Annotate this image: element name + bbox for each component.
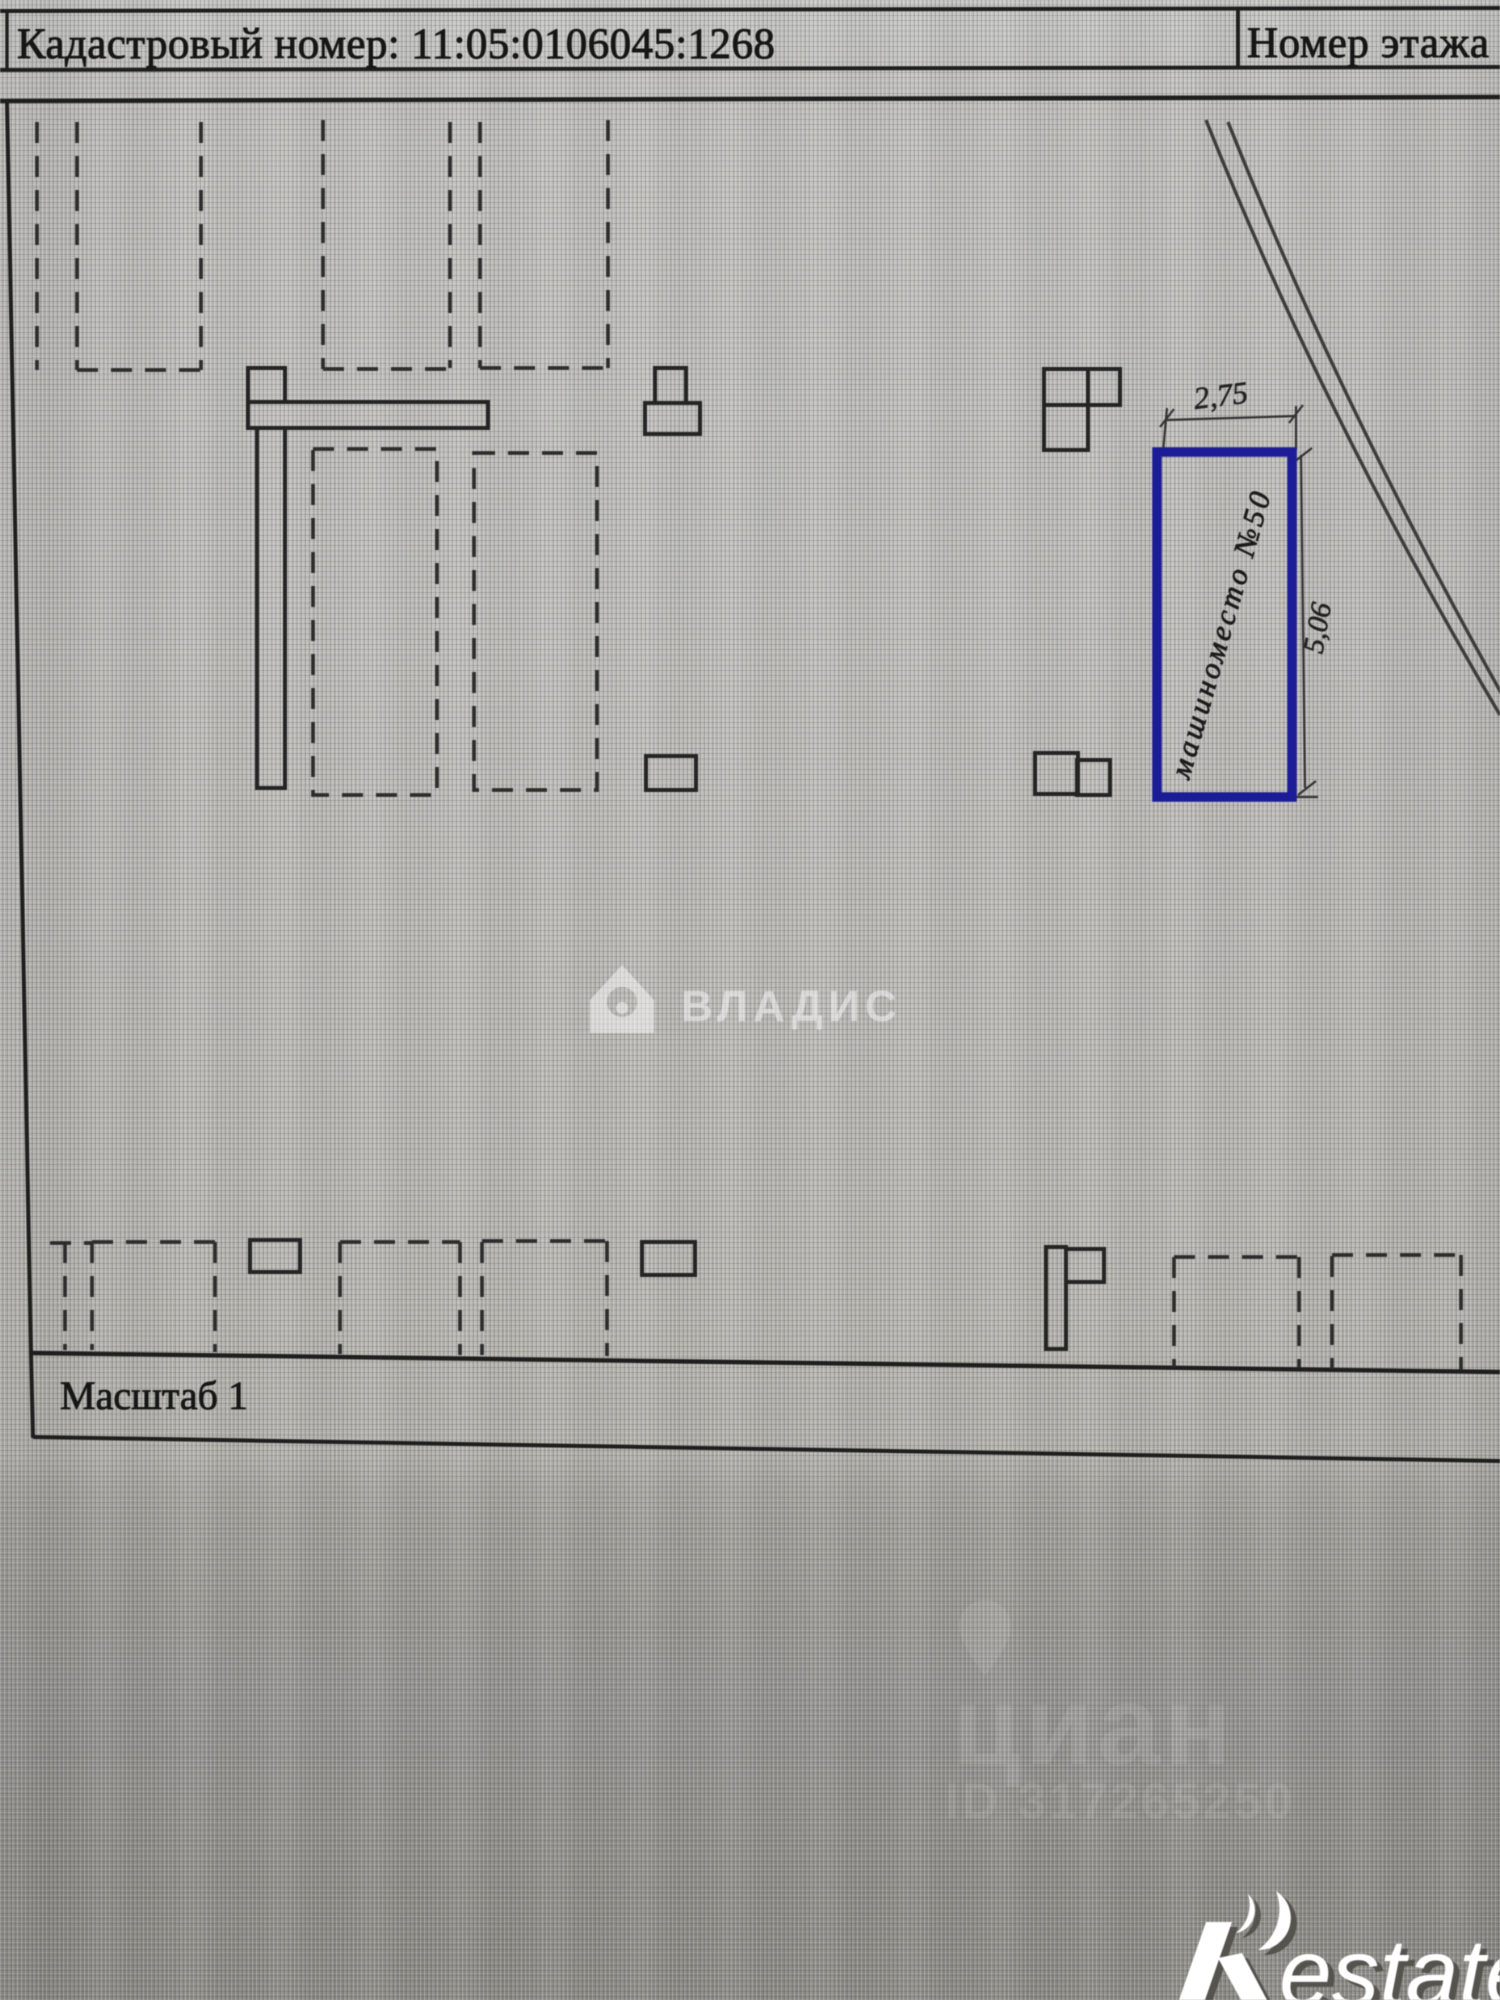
svg-text:Номер этажа: Номер этажа <box>1247 20 1490 67</box>
svg-text:2,75: 2,75 <box>1192 375 1250 416</box>
svg-text:ID 317265250: ID 317265250 <box>945 1773 1295 1829</box>
svg-text:циан: циан <box>952 1663 1236 1788</box>
svg-text:ВЛАДИС: ВЛАДИС <box>681 982 902 1031</box>
svg-text:estate: estate <box>1279 1920 1500 2000</box>
svg-text:Масштаб 1: Масштаб 1 <box>60 1373 248 1418</box>
svg-text:Кадастровый номер: 11:05:01060: Кадастровый номер: 11:05:0106045:1268 <box>17 21 775 68</box>
